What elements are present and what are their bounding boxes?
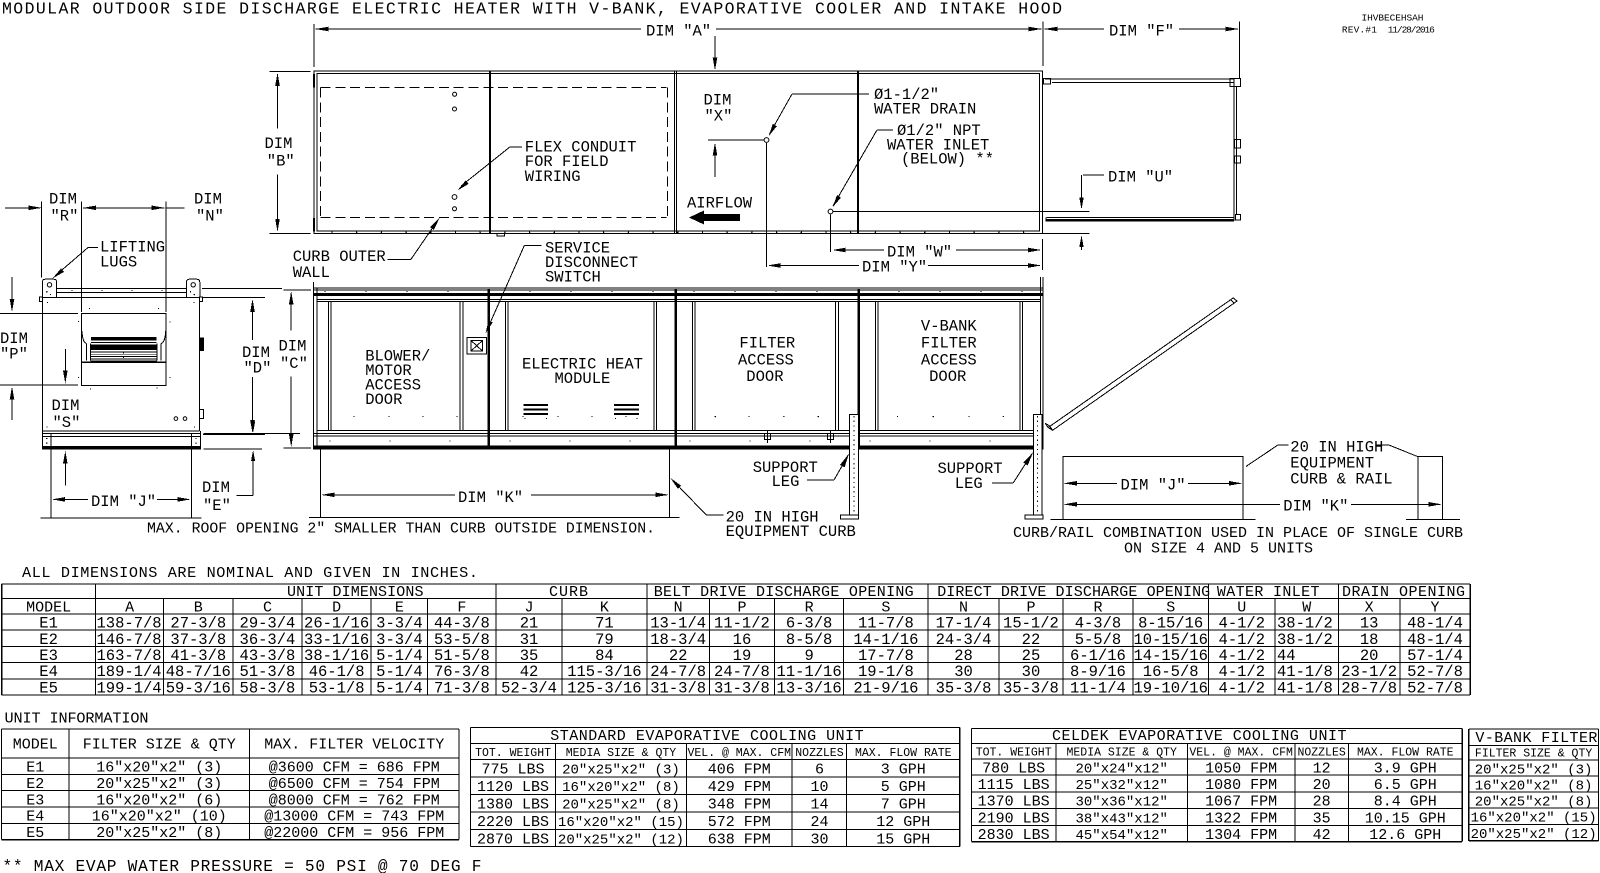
svg-text:16"x20"x2" (8): 16"x20"x2" (8)	[1475, 778, 1593, 794]
svg-text:MODULAR OUTDOOR SIDE DISCHARGE: MODULAR OUTDOOR SIDE DISCHARGE ELECTRIC …	[2, 0, 1062, 19]
svg-text:VEL. @ MAX. CFM: VEL. @ MAX. CFM	[687, 747, 791, 760]
svg-text:2220 LBS: 2220 LBS	[477, 814, 549, 831]
svg-text:DIM "A": DIM "A"	[646, 23, 711, 41]
svg-text:DOOR: DOOR	[929, 368, 966, 386]
svg-text:E3: E3	[26, 792, 44, 809]
svg-text:"S": "S"	[53, 414, 81, 432]
svg-text:35-3/8: 35-3/8	[1003, 679, 1059, 697]
svg-text:FILTER SIZE & QTY: FILTER SIZE & QTY	[83, 737, 236, 754]
svg-text:572 FPM: 572 FPM	[708, 814, 771, 831]
svg-text:2830 LBS: 2830 LBS	[978, 827, 1050, 844]
svg-text:1050 FPM: 1050 FPM	[1205, 760, 1277, 777]
svg-text:DIM: DIM	[279, 337, 307, 355]
svg-text:775 LBS: 775 LBS	[482, 762, 545, 779]
svg-text:20"x25"x2" (3): 20"x25"x2" (3)	[1475, 762, 1593, 778]
svg-text:20"x25"x2" (3): 20"x25"x2" (3)	[96, 776, 222, 793]
svg-text:E5: E5	[26, 825, 44, 842]
svg-text:7 GPH: 7 GPH	[881, 797, 926, 814]
svg-text:TOT. WEIGHT: TOT. WEIGHT	[976, 747, 1052, 760]
svg-text:12: 12	[1313, 760, 1331, 777]
svg-text:"R": "R"	[51, 208, 79, 226]
svg-text:E4: E4	[26, 809, 44, 826]
svg-text:ON SIZE 4 AND 5 UNITS: ON SIZE 4 AND 5 UNITS	[1124, 541, 1313, 558]
svg-text:@3600 CFM = 686 FPM: @3600 CFM = 686 FPM	[269, 760, 440, 777]
svg-text:@8000 CFM = 762 FPM: @8000 CFM = 762 FPM	[269, 792, 440, 809]
svg-text:MODULE: MODULE	[555, 370, 611, 388]
svg-text:13-3/16: 13-3/16	[777, 679, 842, 697]
svg-text:199-1/4: 199-1/4	[97, 679, 162, 697]
svg-text:MEDIA SIZE & QTY: MEDIA SIZE & QTY	[566, 747, 677, 760]
svg-text:20: 20	[1313, 777, 1331, 794]
svg-text:58-3/8: 58-3/8	[240, 679, 296, 697]
svg-text:DIM: DIM	[52, 397, 80, 415]
svg-text:12 GPH: 12 GPH	[876, 814, 930, 831]
svg-text:CURB & RAIL: CURB & RAIL	[1290, 471, 1392, 489]
svg-text:16"x20"x2" (3): 16"x20"x2" (3)	[96, 760, 222, 777]
svg-text:406 FPM: 406 FPM	[708, 762, 771, 779]
svg-text:42: 42	[1313, 827, 1331, 844]
svg-text:348 FPM: 348 FPM	[708, 797, 771, 814]
svg-text:DIM "Y": DIM "Y"	[862, 259, 927, 277]
svg-text:ACCESS: ACCESS	[921, 352, 977, 370]
svg-text:LUGS: LUGS	[100, 254, 137, 272]
svg-text:DIM "J": DIM "J"	[1121, 477, 1186, 495]
svg-text:20"x24"x12": 20"x24"x12"	[1075, 761, 1167, 777]
svg-text:20"x25"x2" (3): 20"x25"x2" (3)	[562, 763, 680, 779]
svg-text:6: 6	[815, 762, 824, 779]
svg-text:2190 LBS: 2190 LBS	[978, 810, 1050, 827]
svg-text:4-1/2: 4-1/2	[1219, 679, 1266, 697]
svg-text:3 GPH: 3 GPH	[881, 762, 926, 779]
svg-text:FILTER: FILTER	[921, 334, 977, 352]
svg-text:NOZZLES: NOZZLES	[795, 747, 843, 760]
svg-text:638 FPM: 638 FPM	[708, 831, 771, 848]
svg-text:DIM: DIM	[202, 479, 230, 497]
svg-text:780 LBS: 780 LBS	[982, 760, 1045, 777]
svg-text:16"x20"x2" (8): 16"x20"x2" (8)	[562, 780, 680, 796]
svg-text:"N": "N"	[196, 208, 224, 226]
svg-text:TOT. WEIGHT: TOT. WEIGHT	[475, 747, 551, 760]
svg-text:1304 FPM: 1304 FPM	[1205, 827, 1277, 844]
svg-text:28: 28	[1313, 794, 1331, 811]
svg-text:AIRFLOW: AIRFLOW	[687, 195, 753, 213]
svg-text:CELDEK EVAPORATIVE COOLING UNI: CELDEK EVAPORATIVE COOLING UNIT	[1052, 728, 1347, 745]
svg-text:20"x25"x2" (8): 20"x25"x2" (8)	[96, 825, 222, 842]
svg-text:DIM "K": DIM "K"	[458, 489, 523, 507]
svg-text:MEDIA SIZE & QTY: MEDIA SIZE & QTY	[1066, 747, 1177, 760]
svg-text:DIM: DIM	[194, 191, 222, 209]
svg-text:MAX. FILTER VELOCITY: MAX. FILTER VELOCITY	[264, 737, 444, 754]
svg-text:DIM: DIM	[265, 135, 293, 153]
svg-text:WIRING: WIRING	[525, 168, 581, 186]
svg-text:31-3/8: 31-3/8	[714, 679, 770, 697]
svg-text:45"x54"x12": 45"x54"x12"	[1075, 828, 1167, 844]
svg-text:FILTER SIZE & QTY: FILTER SIZE & QTY	[1475, 748, 1592, 761]
svg-text:1115 LBS: 1115 LBS	[978, 777, 1050, 794]
svg-text:"X": "X"	[705, 108, 733, 126]
svg-text:CURB: CURB	[549, 584, 588, 601]
svg-text:125-3/16: 125-3/16	[567, 679, 641, 697]
svg-text:19-10/16: 19-10/16	[1133, 679, 1207, 697]
svg-text:1080 FPM: 1080 FPM	[1205, 777, 1277, 794]
svg-text:"B": "B"	[267, 153, 295, 171]
svg-text:** MAX EVAP WATER PRESSURE = 5: ** MAX EVAP WATER PRESSURE = 50 PSI @ 70…	[3, 858, 482, 873]
svg-text:59-3/16: 59-3/16	[166, 679, 231, 697]
svg-text:24: 24	[810, 814, 828, 831]
svg-text:MAX. FLOW RATE: MAX. FLOW RATE	[1357, 747, 1454, 760]
svg-text:ALL DIMENSIONS ARE NOMINAL AND: ALL DIMENSIONS ARE NOMINAL AND GIVEN IN …	[22, 564, 478, 582]
svg-text:DOOR: DOOR	[746, 368, 783, 386]
svg-text:DOOR: DOOR	[365, 391, 402, 409]
svg-text:LEG: LEG	[955, 475, 983, 493]
svg-text:@13000 CFM = 743 FPM: @13000 CFM = 743 FPM	[264, 809, 444, 826]
svg-text:ACCESS: ACCESS	[738, 352, 794, 370]
svg-text:16"x20"x2" (10): 16"x20"x2" (10)	[92, 809, 227, 826]
svg-text:UNIT DIMENSIONS: UNIT DIMENSIONS	[287, 584, 424, 601]
svg-text:30: 30	[810, 831, 828, 848]
svg-text:DRAIN OPENING: DRAIN OPENING	[1342, 584, 1465, 601]
svg-text:WALL: WALL	[293, 264, 330, 282]
svg-text:MAX. FLOW RATE: MAX. FLOW RATE	[855, 747, 952, 760]
svg-text:15 GPH: 15 GPH	[876, 831, 930, 848]
svg-text:"P": "P"	[0, 346, 28, 364]
svg-text:52-3/4: 52-3/4	[501, 679, 557, 697]
svg-text:DIM "F": DIM "F"	[1109, 23, 1174, 41]
svg-text:CURB/RAIL COMBINATION USED IN: CURB/RAIL COMBINATION USED IN PLACE OF S…	[1013, 525, 1463, 542]
svg-text:11/28/2016: 11/28/2016	[1388, 24, 1435, 35]
svg-text:16"x20"x2" (6): 16"x20"x2" (6)	[96, 792, 222, 809]
svg-text:DIM "J": DIM "J"	[91, 493, 156, 511]
svg-text:20"x25"x2" (8): 20"x25"x2" (8)	[562, 798, 680, 814]
svg-text:10.15 GPH: 10.15 GPH	[1365, 810, 1446, 827]
svg-text:REV.#1: REV.#1	[1342, 24, 1377, 35]
svg-text:21-9/16: 21-9/16	[853, 679, 918, 697]
svg-text:52-7/8: 52-7/8	[1407, 679, 1463, 697]
svg-text:1370 LBS: 1370 LBS	[978, 794, 1050, 811]
svg-text:31-3/8: 31-3/8	[650, 679, 706, 697]
svg-text:16"x20"x2" (15): 16"x20"x2" (15)	[558, 815, 684, 831]
svg-text:@22000 CFM = 956 FPM: @22000 CFM = 956 FPM	[264, 825, 444, 842]
svg-text:UNIT INFORMATION: UNIT INFORMATION	[5, 710, 149, 728]
svg-text:35: 35	[1313, 810, 1331, 827]
svg-text:25"x32"x12": 25"x32"x12"	[1075, 778, 1167, 794]
svg-text:SWITCH: SWITCH	[545, 268, 601, 286]
svg-text:429 FPM: 429 FPM	[708, 779, 771, 796]
svg-text:14: 14	[810, 797, 828, 814]
svg-text:BELT DRIVE DISCHARGE OPENING: BELT DRIVE DISCHARGE OPENING	[654, 584, 914, 601]
svg-text:3.9 GPH: 3.9 GPH	[1374, 760, 1437, 777]
svg-text:MAX. ROOF OPENING 2" SMALLER T: MAX. ROOF OPENING 2" SMALLER THAN CURB O…	[147, 522, 655, 538]
svg-text:DIM "K": DIM "K"	[1283, 498, 1348, 516]
svg-text:MODEL: MODEL	[13, 737, 58, 754]
svg-text:IHVBECEHSAH: IHVBECEHSAH	[1362, 13, 1424, 24]
svg-text:"E": "E"	[203, 497, 231, 515]
svg-text:DIRECT DRIVE DISCHARGE OPENING: DIRECT DRIVE DISCHARGE OPENING	[937, 584, 1210, 601]
svg-text:NOZZLES: NOZZLES	[1297, 747, 1345, 760]
svg-text:12.6 GPH: 12.6 GPH	[1369, 827, 1441, 844]
svg-text:30"x36"x12": 30"x36"x12"	[1075, 795, 1167, 811]
svg-text:1067 FPM: 1067 FPM	[1205, 794, 1277, 811]
svg-text:28-7/8: 28-7/8	[1341, 679, 1397, 697]
svg-text:(BELOW) **: (BELOW) **	[901, 151, 994, 169]
svg-text:V-BANK FILTER: V-BANK FILTER	[1475, 730, 1597, 747]
svg-text:"C": "C"	[280, 355, 308, 373]
svg-text:71-3/8: 71-3/8	[434, 679, 490, 697]
svg-text:6.5 GPH: 6.5 GPH	[1374, 777, 1437, 794]
svg-text:53-1/8: 53-1/8	[309, 679, 365, 697]
svg-text:10: 10	[810, 779, 828, 796]
svg-text:VEL. @ MAX. CFM: VEL. @ MAX. CFM	[1189, 747, 1293, 760]
svg-text:"D": "D"	[244, 360, 272, 378]
svg-text:20"x25"x2" (12): 20"x25"x2" (12)	[558, 832, 684, 848]
svg-text:LEG: LEG	[772, 473, 800, 491]
svg-text:1380 LBS: 1380 LBS	[477, 797, 549, 814]
svg-text:1322 FPM: 1322 FPM	[1205, 810, 1277, 827]
svg-text:20"x25"x2" (8): 20"x25"x2" (8)	[1475, 794, 1593, 810]
svg-text:16"x20"x2" (15): 16"x20"x2" (15)	[1471, 811, 1597, 827]
svg-text:E1: E1	[26, 760, 44, 777]
svg-text:2870 LBS: 2870 LBS	[477, 831, 549, 848]
svg-text:11-1/4: 11-1/4	[1070, 679, 1126, 697]
svg-text:41-1/8: 41-1/8	[1277, 679, 1333, 697]
svg-text:DIM "U": DIM "U"	[1108, 169, 1173, 187]
svg-text:8.4 GPH: 8.4 GPH	[1374, 794, 1437, 811]
svg-text:WATER INLET: WATER INLET	[1217, 584, 1320, 601]
svg-text:@6500 CFM = 754 FPM: @6500 CFM = 754 FPM	[269, 776, 440, 793]
svg-text:STANDARD EVAPORATIVE COOLING U: STANDARD EVAPORATIVE COOLING UNIT	[550, 728, 864, 745]
svg-text:20"x25"x2" (12): 20"x25"x2" (12)	[1471, 827, 1597, 843]
svg-text:5-1/4: 5-1/4	[376, 679, 423, 697]
svg-text:V-BANK: V-BANK	[921, 317, 978, 335]
svg-text:WATER DRAIN: WATER DRAIN	[874, 101, 976, 119]
svg-text:E5: E5	[39, 679, 58, 697]
svg-text:1120 LBS: 1120 LBS	[477, 779, 549, 796]
svg-text:DIM: DIM	[49, 191, 77, 209]
svg-text:FILTER: FILTER	[739, 334, 795, 352]
svg-text:38"x43"x12": 38"x43"x12"	[1075, 811, 1167, 827]
svg-text:35-3/8: 35-3/8	[936, 679, 992, 697]
svg-text:5 GPH: 5 GPH	[881, 779, 926, 796]
svg-text:EQUIPMENT CURB: EQUIPMENT CURB	[726, 523, 856, 541]
svg-text:E2: E2	[26, 776, 44, 793]
